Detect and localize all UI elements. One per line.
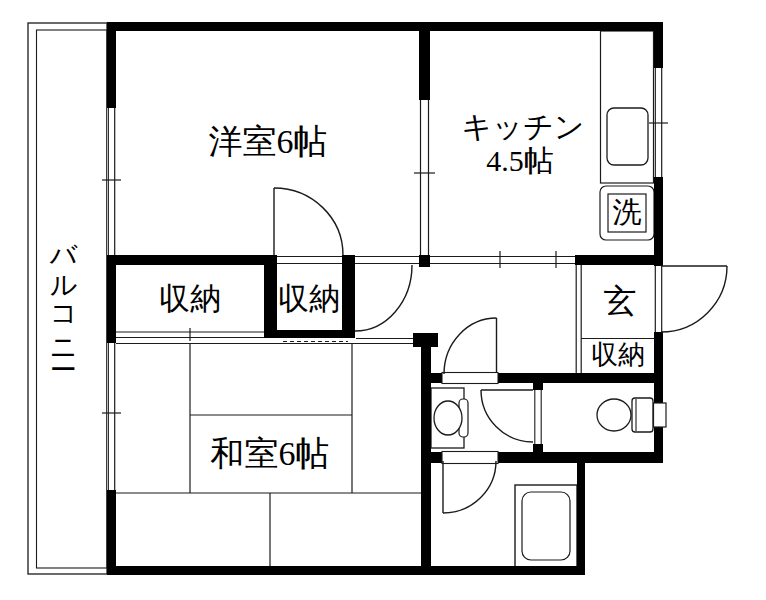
western-room-door-swing [355, 265, 412, 331]
western-room-label: 洋室6帖 [209, 124, 328, 161]
balcony-label: バルコニー [48, 225, 77, 358]
entrance-closet-label: 収納 [591, 341, 645, 370]
toilet-tank [632, 398, 653, 432]
closet-door-swing [274, 188, 343, 255]
kitchen-label-line1: キッチン [462, 111, 585, 143]
entrance-label: 玄 [604, 284, 637, 320]
toilet-door-opening [535, 390, 541, 444]
wash-basin [434, 401, 462, 435]
bathroom-door-swing [443, 461, 496, 513]
washroom-fixtures [431, 388, 468, 448]
room-divider-partition [414, 100, 435, 255]
balcony-window-japanese-room [102, 343, 121, 490]
japanese-room-label: 和室6帖 [211, 436, 330, 473]
kitchen-label-line2: 4.5帖 [486, 145, 554, 177]
washing-machine-label: 洗 [613, 197, 642, 228]
floorplan: バルコニー 洋室6帖 キッチン 4.5帖 収納 収納 和室6帖 玄 収納 洗 [0, 0, 766, 600]
toilet-bowl [597, 399, 631, 431]
washroom-door-swing [444, 318, 497, 374]
bathroom-door-threshold [442, 452, 498, 464]
closet-center-label: 収納 [278, 282, 340, 315]
toilet-wall-box [654, 403, 667, 427]
entrance-door-swing [661, 266, 727, 332]
closet-west-label: 収納 [159, 282, 221, 315]
entrance-door-opening [654, 266, 663, 332]
balcony-window-west-room [102, 108, 121, 255]
toilet-door-swing [481, 390, 533, 442]
bathtub [515, 485, 577, 567]
washroom-door-threshold [442, 373, 498, 384]
toilet-fixtures [597, 398, 653, 432]
floorplan-drawing [0, 0, 766, 600]
kitchen-sink [607, 108, 648, 165]
